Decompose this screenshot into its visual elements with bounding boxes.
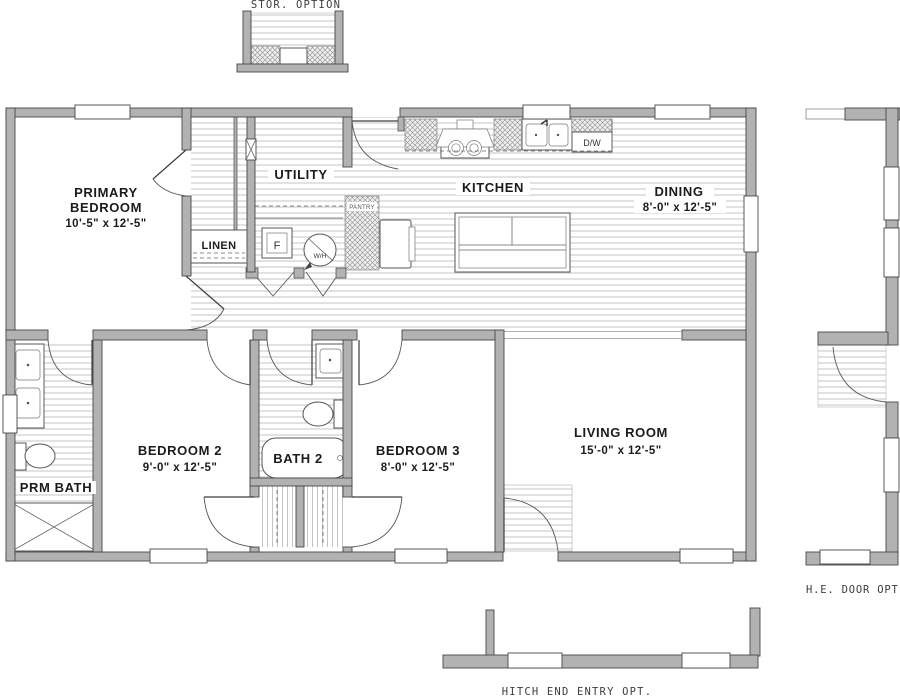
window bbox=[395, 549, 447, 563]
refrigerator bbox=[380, 220, 411, 268]
window bbox=[523, 105, 570, 119]
entry-landing-floor bbox=[504, 485, 572, 551]
interior-wall bbox=[93, 330, 207, 340]
sink-drain bbox=[27, 402, 30, 405]
dims-dining: 8'-0" x 12'-5" bbox=[643, 202, 717, 214]
window bbox=[884, 167, 899, 220]
toilet-bowl bbox=[303, 402, 333, 426]
door-arc bbox=[359, 340, 402, 385]
window bbox=[744, 196, 758, 252]
prm-bath-wall bbox=[93, 340, 102, 552]
he-wall bbox=[886, 402, 898, 438]
label-bath2: BATH 2 bbox=[273, 451, 323, 466]
window bbox=[884, 438, 899, 492]
door-arc bbox=[204, 497, 254, 547]
he-floor bbox=[818, 345, 886, 407]
closet3-floor bbox=[304, 486, 343, 547]
interior-wall bbox=[402, 330, 502, 340]
hitch-wall-stub bbox=[486, 610, 494, 656]
toilet-bowl bbox=[25, 444, 55, 468]
exterior-wall-top bbox=[6, 108, 352, 117]
primary-wall bbox=[182, 108, 191, 150]
hitch-end-option-detail: HITCH END ENTRY OPT. bbox=[443, 608, 760, 698]
bifold-post bbox=[294, 268, 304, 278]
door-arc bbox=[207, 340, 250, 385]
stor-floor bbox=[251, 13, 335, 49]
dims-primary: 10'-5" x 12'-5" bbox=[65, 218, 146, 230]
sink-drain bbox=[329, 359, 332, 362]
label-dining: DINING bbox=[654, 184, 703, 199]
floor-plan-svg: D/W PANTRY F W/H bbox=[0, 0, 900, 698]
wall-post bbox=[343, 547, 352, 552]
counter-dw-top bbox=[572, 119, 612, 132]
closet-divider-wall bbox=[296, 486, 304, 547]
label-primary-2: BEDROOM bbox=[70, 200, 142, 215]
window bbox=[820, 550, 870, 564]
interior-wall bbox=[682, 330, 746, 340]
bifold-post bbox=[336, 268, 346, 278]
window bbox=[655, 105, 710, 119]
bedroom2-wall bbox=[250, 340, 259, 497]
he-wall bbox=[886, 220, 898, 228]
stor-base-wall bbox=[237, 64, 348, 72]
window bbox=[680, 549, 733, 563]
storage-option-detail: STOR. OPTION bbox=[237, 0, 348, 72]
backdoor-jamb-wall bbox=[343, 117, 352, 167]
label-utility: UTILITY bbox=[274, 167, 327, 182]
window bbox=[884, 228, 899, 277]
water-heater bbox=[304, 234, 336, 266]
closet-top-wall bbox=[250, 478, 352, 486]
counter-mid bbox=[494, 119, 522, 150]
label-living: LIVING ROOM bbox=[574, 425, 668, 440]
window bbox=[150, 549, 207, 563]
window bbox=[3, 395, 17, 433]
bedroom3-wall bbox=[343, 340, 352, 497]
kitchen-island bbox=[455, 213, 570, 272]
stor-appliance bbox=[280, 48, 307, 64]
backdoor-jamb-post bbox=[398, 117, 404, 131]
interior-wall bbox=[312, 330, 357, 340]
stor-wall bbox=[335, 11, 343, 65]
interior-wall bbox=[6, 330, 48, 340]
dishwasher-label: D/W bbox=[583, 138, 601, 148]
label-kitchen: KITCHEN bbox=[462, 180, 524, 195]
he-door-option-detail: H.E. DOOR OPT. bbox=[806, 108, 900, 596]
label-bedroom2: BEDROOM 2 bbox=[138, 443, 222, 458]
dims-living: 15'-0" x 12'-5" bbox=[580, 445, 661, 457]
exterior-wall-right bbox=[746, 108, 756, 561]
living-wall bbox=[495, 330, 504, 552]
window bbox=[75, 105, 130, 119]
closet-partition bbox=[234, 117, 237, 232]
linen-label: LINEN bbox=[202, 240, 237, 252]
closet2-floor bbox=[259, 486, 296, 547]
water-heater-label: W/H bbox=[314, 253, 327, 260]
window bbox=[682, 653, 730, 668]
sink-drain bbox=[27, 364, 30, 367]
storage-option-label: STOR. OPTION bbox=[251, 0, 341, 11]
he-wall bbox=[886, 492, 898, 553]
window bbox=[508, 653, 562, 668]
interior-wall bbox=[253, 330, 267, 340]
he-wall bbox=[886, 108, 898, 167]
label-prm-bath: PRM BATH bbox=[20, 480, 92, 495]
hitch-wall-stub bbox=[750, 608, 760, 656]
sink-drain bbox=[557, 134, 559, 136]
sink-drain bbox=[535, 134, 537, 136]
hood-chimney bbox=[457, 120, 473, 129]
counter-left bbox=[405, 119, 437, 150]
floor-plan-page: D/W PANTRY F W/H bbox=[0, 0, 900, 698]
door-arc bbox=[153, 179, 186, 196]
hitch-end-option-label: HITCH END ENTRY OPT. bbox=[502, 686, 652, 698]
dims-bedroom2: 9'-0" x 12'-5" bbox=[143, 462, 217, 474]
he-open-wall-line bbox=[806, 109, 845, 119]
refrigerator-handle bbox=[409, 227, 415, 261]
primary-wall bbox=[182, 196, 191, 276]
he-wall-mid bbox=[818, 332, 888, 345]
he-door-option-label: H.E. DOOR OPT. bbox=[806, 584, 900, 596]
pantry-label: PANTRY bbox=[349, 205, 375, 211]
label-primary-1: PRIMARY bbox=[74, 185, 138, 200]
dims-bedroom3: 8'-0" x 12'-5" bbox=[381, 462, 455, 474]
linen-closet: LINEN bbox=[191, 230, 247, 263]
wall-post bbox=[250, 547, 259, 552]
stor-counter bbox=[307, 46, 335, 64]
stor-counter bbox=[251, 46, 280, 64]
label-bedroom3: BEDROOM 3 bbox=[376, 443, 460, 458]
furnace-label: F bbox=[274, 240, 281, 252]
door-arc bbox=[352, 497, 402, 547]
tub-faucet bbox=[338, 456, 343, 461]
stor-wall bbox=[243, 11, 251, 65]
range-hood bbox=[436, 129, 494, 147]
door-leaf bbox=[153, 150, 186, 179]
